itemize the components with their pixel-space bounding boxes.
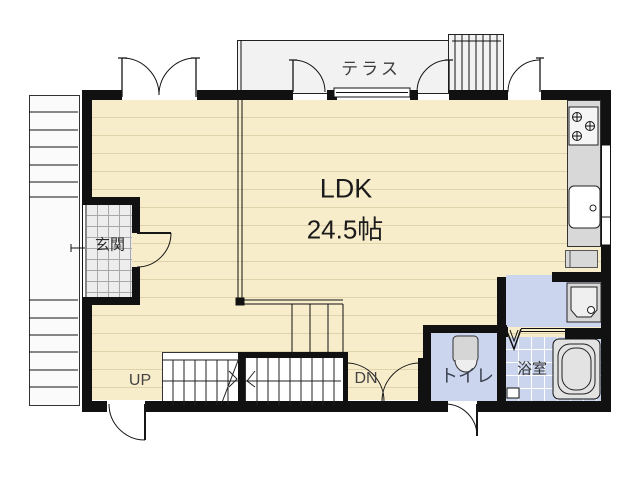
stairs-down-box bbox=[245, 352, 348, 406]
entrance-label: 玄関 bbox=[95, 234, 125, 255]
kitchen-side-door bbox=[508, 58, 544, 92]
terrace-label: テラス bbox=[341, 55, 401, 80]
wall-right bbox=[601, 90, 611, 145]
exterior-staircase bbox=[29, 95, 80, 406]
wall-bottom bbox=[145, 401, 448, 412]
wall-left bbox=[82, 297, 92, 412]
sanitary-wall bbox=[497, 277, 506, 401]
toilet-door bbox=[445, 404, 477, 436]
bottom-left-door bbox=[109, 404, 145, 440]
kitchen-counter bbox=[567, 100, 601, 247]
stair-divider-wall bbox=[238, 352, 245, 406]
entrance-wall bbox=[82, 297, 140, 305]
terrace-steps bbox=[448, 34, 504, 94]
bathroom-label: 浴室 bbox=[517, 358, 547, 379]
wall-bottom bbox=[82, 401, 107, 412]
wall-top bbox=[449, 90, 508, 100]
washroom-floor bbox=[506, 275, 601, 327]
toilet-wall bbox=[423, 325, 507, 333]
double-door-right-leaf bbox=[418, 358, 423, 403]
french-doors bbox=[118, 58, 200, 97]
kitchen-end-cabinet bbox=[565, 250, 598, 268]
wall-top bbox=[197, 90, 293, 100]
entrance-wall bbox=[132, 197, 140, 233]
double-door-left-leaf bbox=[343, 358, 348, 403]
stairs-up-box bbox=[162, 352, 240, 406]
stairs-up-label: UP bbox=[129, 372, 151, 390]
stairs-down-edge bbox=[245, 352, 348, 358]
bath-wall bbox=[497, 327, 508, 337]
floor-plan: テラス LDK 24.5帖 玄関 UP DN トイレ 浴室 bbox=[0, 0, 640, 480]
window-right bbox=[602, 145, 611, 245]
wall-top bbox=[410, 90, 418, 100]
ldk-size-label: 24.5帖 bbox=[307, 210, 384, 247]
wall-bottom bbox=[477, 401, 611, 412]
wall-top bbox=[327, 90, 337, 100]
bath-wall bbox=[565, 328, 611, 339]
toilet-label: トイレ bbox=[440, 362, 494, 388]
washroom-wall bbox=[552, 272, 611, 282]
stairs-down-label: DN bbox=[354, 370, 377, 388]
toilet-wall bbox=[423, 333, 431, 401]
wall-left bbox=[82, 90, 92, 205]
ldk-label: LDK bbox=[320, 174, 373, 205]
